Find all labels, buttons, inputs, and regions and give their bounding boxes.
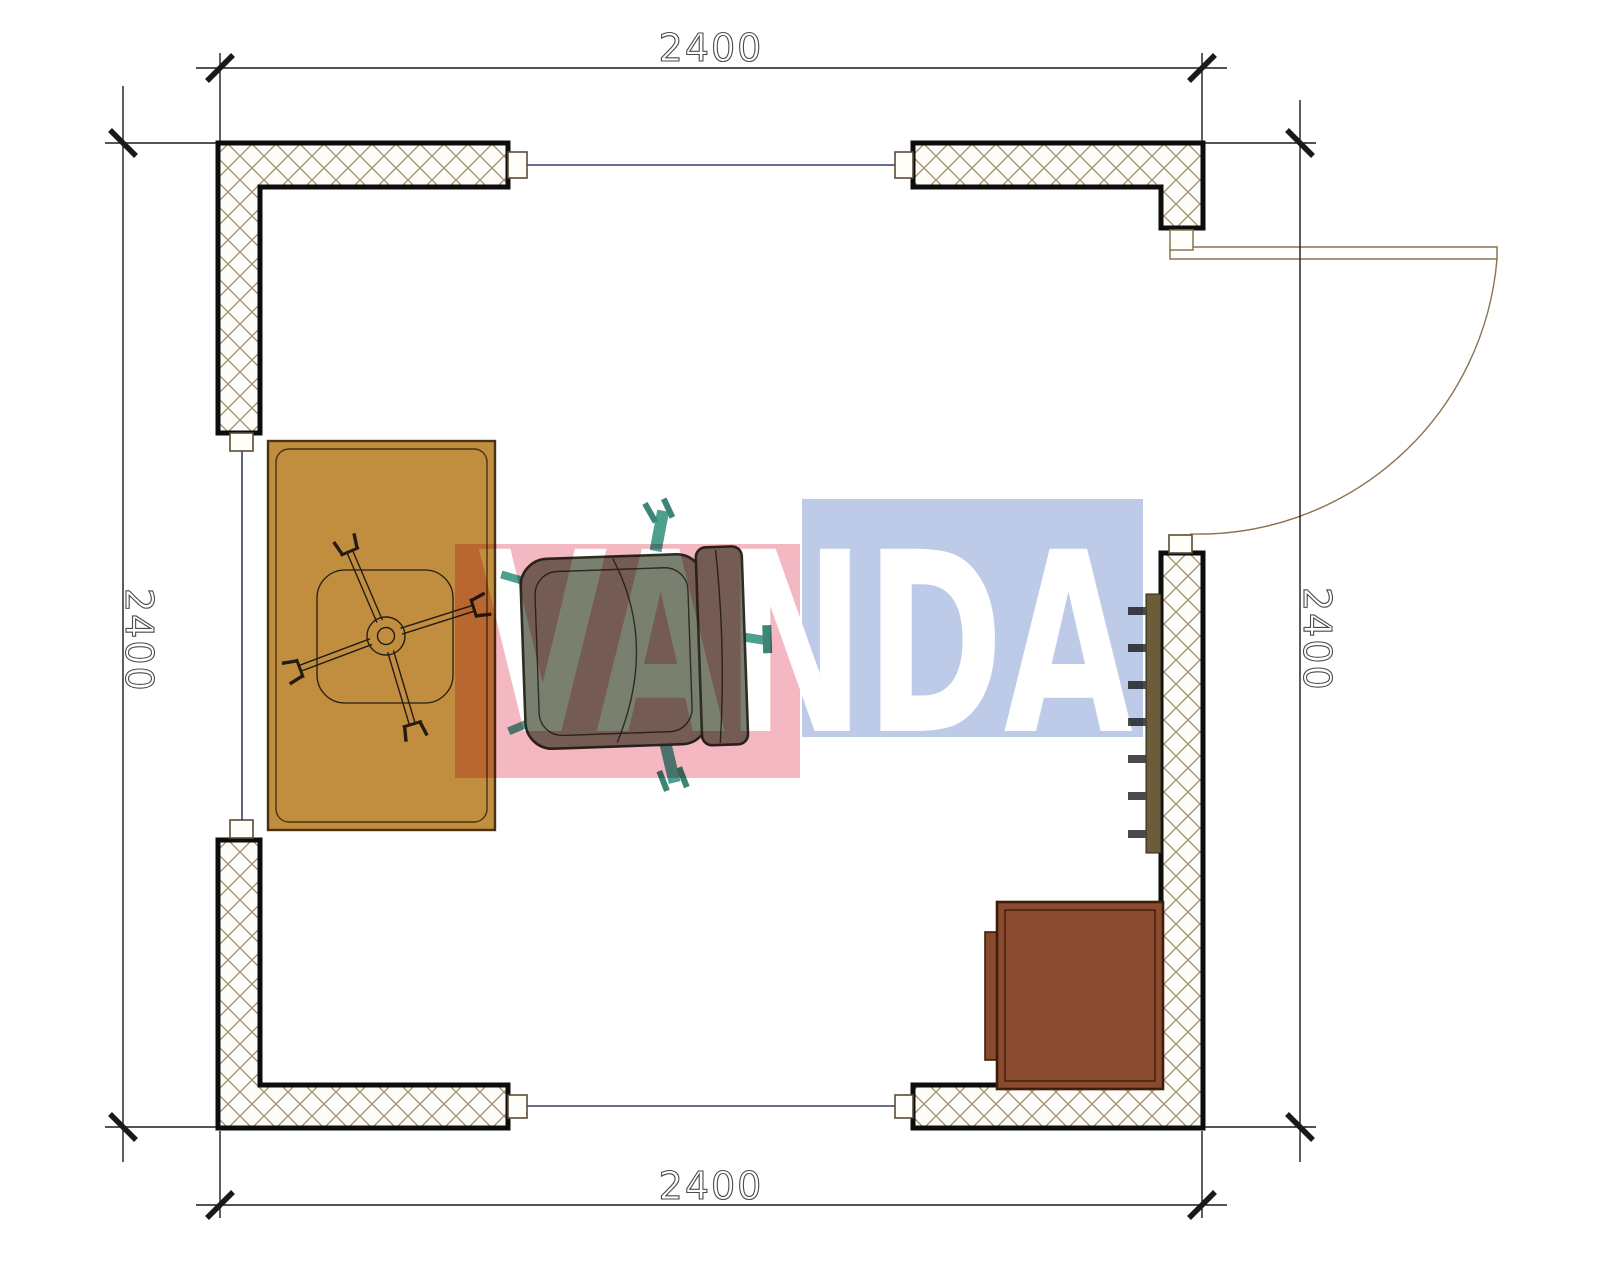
- wall-top-right: [913, 143, 1203, 228]
- window-cap: [508, 1095, 527, 1118]
- window-cap: [895, 152, 913, 178]
- door-hinge-cap: [1170, 230, 1193, 250]
- watermark-blue-block: [802, 499, 1143, 737]
- window-cap: [895, 1095, 913, 1118]
- dimension-label-top: 2400: [659, 26, 764, 70]
- dimension-label-left: 2400: [117, 588, 161, 693]
- door-swing-arc: [1190, 259, 1497, 534]
- window-cap: [230, 820, 253, 838]
- watermark-pink-block: [455, 544, 800, 778]
- cabinet: [985, 902, 1163, 1089]
- radiator-bar: [1146, 594, 1161, 853]
- dimension-label-right: 2400: [1295, 587, 1339, 692]
- wall-bottom-left: [218, 840, 508, 1128]
- floor-plan-canvas: VANDA: [0, 0, 1600, 1280]
- dimension-label-bottom: 2400: [659, 1164, 764, 1208]
- window-cap: [230, 433, 253, 451]
- door: [1170, 230, 1497, 534]
- cabinet-handle: [985, 932, 997, 1060]
- cabinet-body: [997, 902, 1163, 1089]
- watermark: [455, 499, 1143, 778]
- door-leaf: [1170, 247, 1497, 259]
- floor-plan-drawing: VANDA: [0, 0, 1600, 1280]
- window-cap: [508, 152, 527, 178]
- wall-top-left: [218, 143, 508, 433]
- window-cap: [1169, 535, 1192, 553]
